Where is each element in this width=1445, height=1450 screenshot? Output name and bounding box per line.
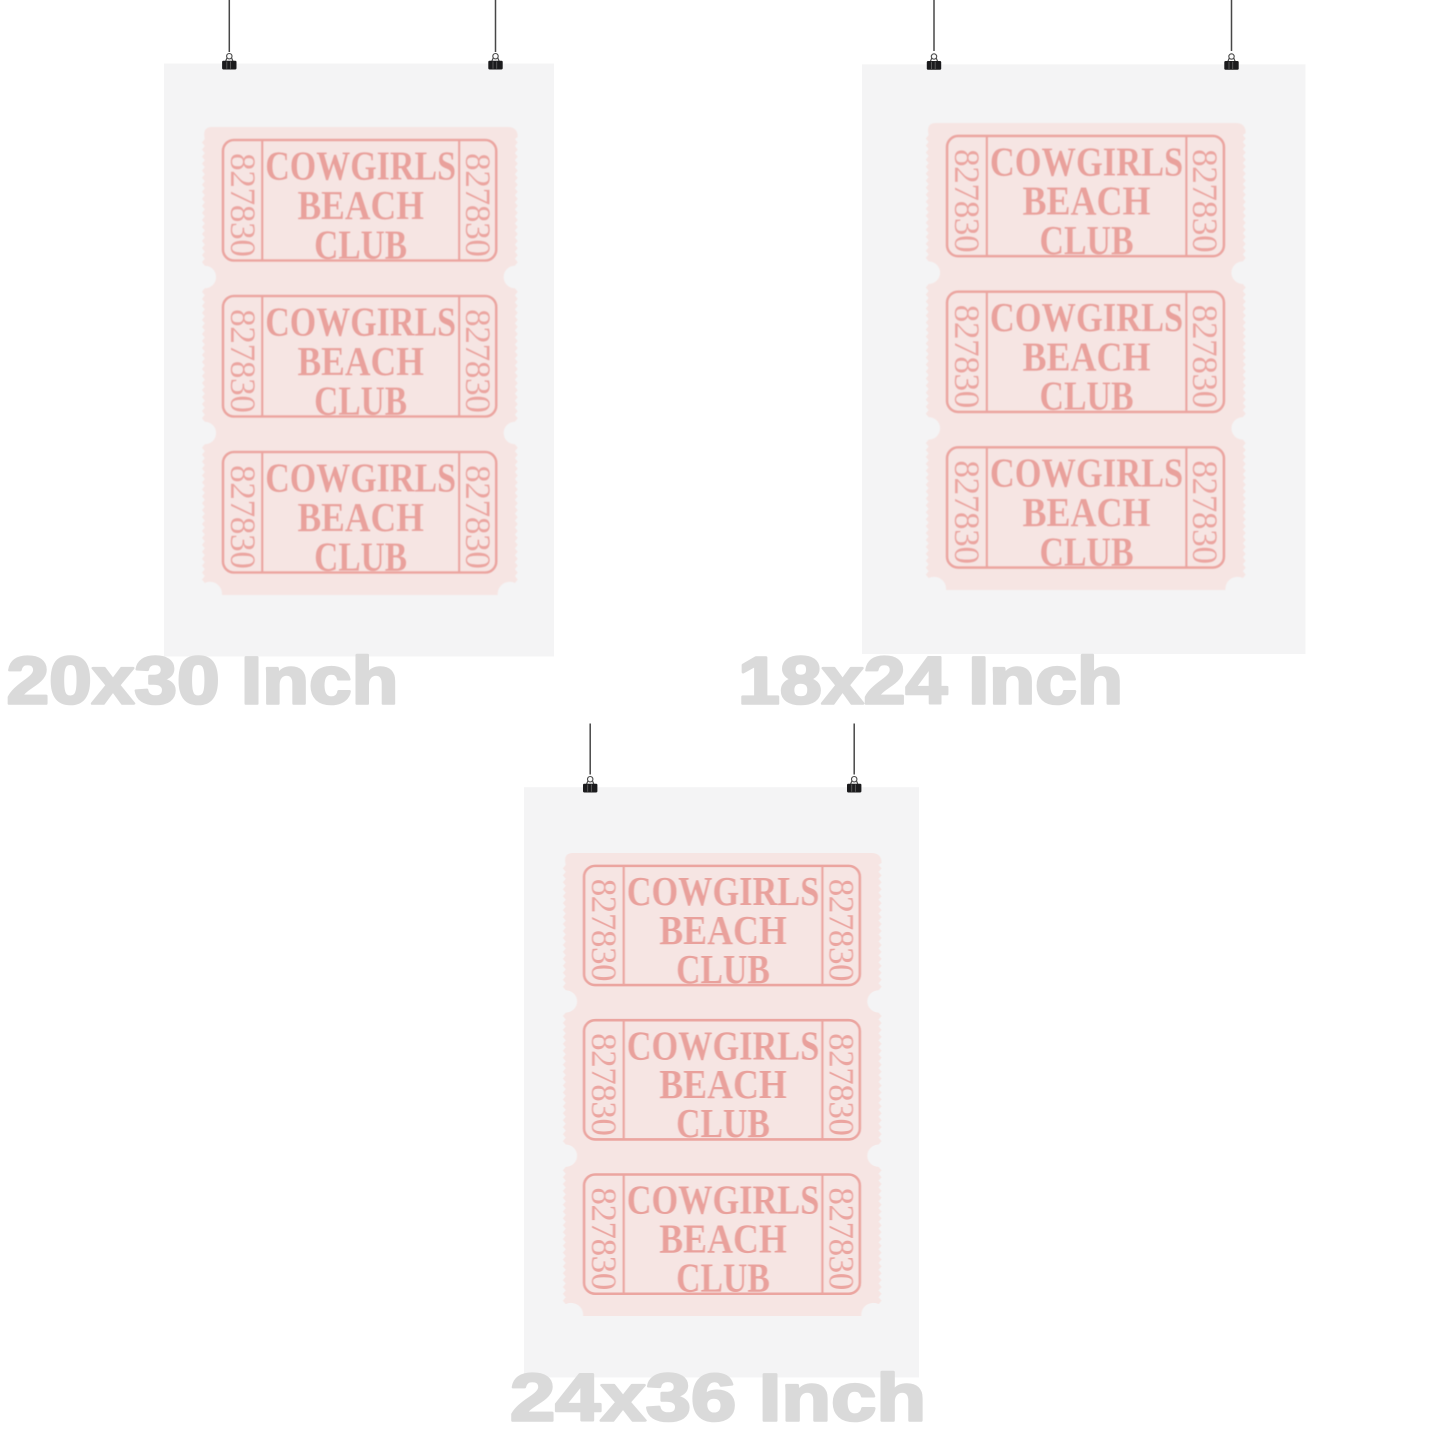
svg-text:18x24 Inch: 18x24 Inch <box>738 644 1123 719</box>
svg-text:20x30 Inch: 20x30 Inch <box>7 644 399 719</box>
svg-text:24x36 Inch: 24x36 Inch <box>510 1361 926 1436</box>
